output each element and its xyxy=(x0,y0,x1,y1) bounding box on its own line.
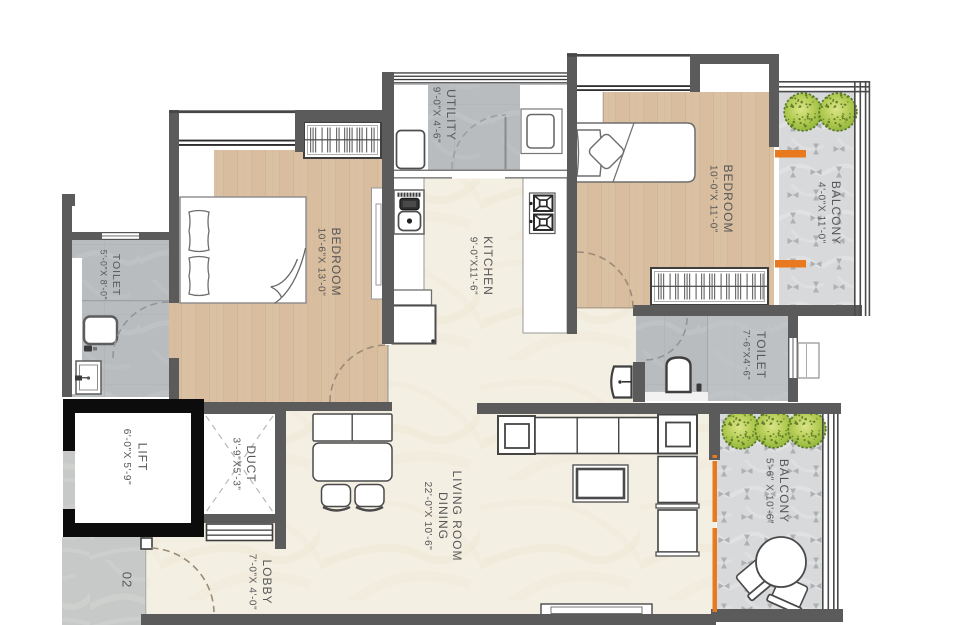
svg-text:TOILET: TOILET xyxy=(754,331,768,379)
svg-text:BEDROOM: BEDROOM xyxy=(721,164,735,233)
svg-text:9'-0"X 4'-6": 9'-0"X 4'-6" xyxy=(431,87,442,143)
svg-text:TOILET: TOILET xyxy=(110,254,122,297)
svg-text:BALCONY: BALCONY xyxy=(777,459,791,523)
svg-text:7'-6"X4'-6": 7'-6"X4'-6" xyxy=(740,330,751,381)
svg-text:5'-6" X 10'-6": 5'-6" X 10'-6" xyxy=(764,458,775,524)
svg-text:3'-9"X5'-3": 3'-9"X5'-3" xyxy=(231,437,242,490)
svg-text:BALCONY: BALCONY xyxy=(829,181,843,245)
svg-text:UTILITY: UTILITY xyxy=(444,89,458,141)
svg-text:DINING: DINING xyxy=(436,492,450,540)
svg-text:LIVING ROOM: LIVING ROOM xyxy=(450,470,464,561)
svg-text:5'-0"X 8'-0": 5'-0"X 8'-0" xyxy=(98,250,108,301)
svg-text:6'-0"X 5'-9": 6'-0"X 5'-9" xyxy=(121,429,132,485)
svg-text:LIFT: LIFT xyxy=(135,443,149,472)
svg-text:LOBBY: LOBBY xyxy=(260,559,274,604)
svg-text:BEDROOM: BEDROOM xyxy=(329,227,343,296)
svg-text:7'-0"X 4'-0": 7'-0"X 4'-0" xyxy=(247,554,258,610)
svg-text:10'-6"X 13'-0": 10'-6"X 13'-0" xyxy=(316,228,327,297)
svg-text:22'-0"X 10'-6": 22'-0"X 10'-6" xyxy=(422,482,433,551)
svg-text:DUCT: DUCT xyxy=(244,445,258,482)
svg-text:9'-0"X11'-6": 9'-0"X11'-6" xyxy=(468,237,479,296)
svg-text:KITCHEN: KITCHEN xyxy=(481,236,495,296)
svg-text:02: 02 xyxy=(120,572,135,588)
svg-text:10'-0"X 11'-0": 10'-0"X 11'-0" xyxy=(708,165,719,233)
svg-text:4'-0"X 11'-0": 4'-0"X 11'-0" xyxy=(816,182,827,244)
